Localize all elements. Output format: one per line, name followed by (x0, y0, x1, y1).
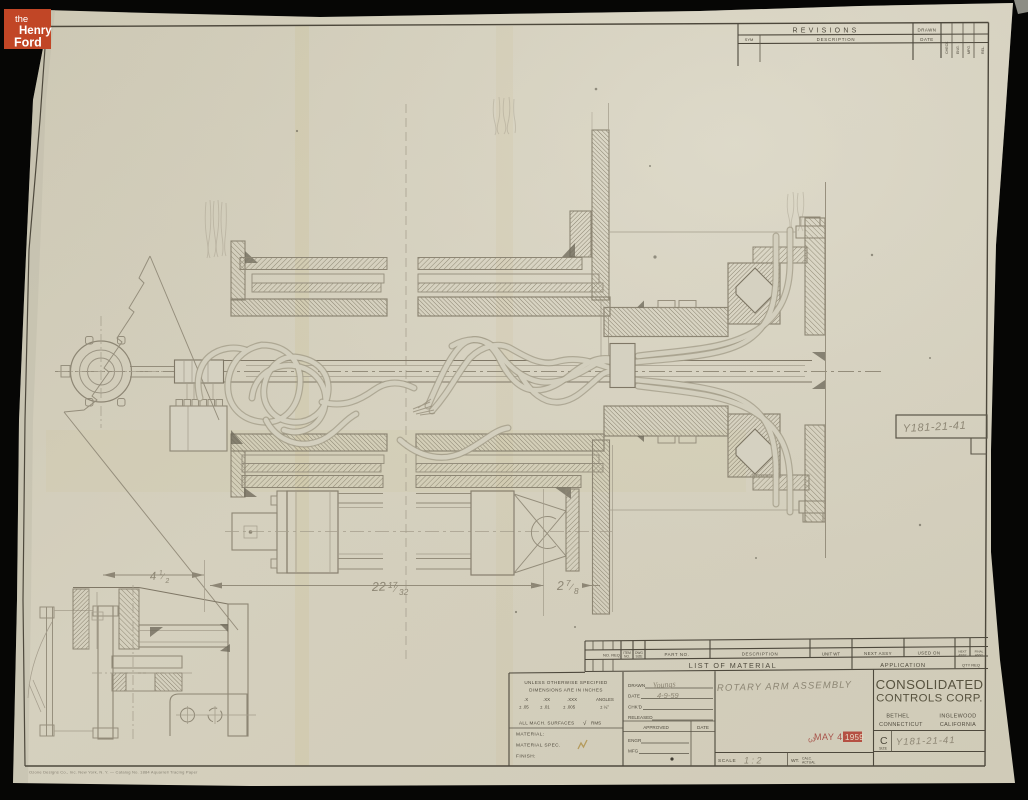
svg-text:DESCRIPTION: DESCRIPTION (742, 652, 779, 657)
svg-text:UNLESS OTHERWISE SPECIFIED: UNLESS OTHERWISE SPECIFIED (524, 680, 608, 685)
svg-text:BETHEL: BETHEL (886, 714, 909, 720)
svg-text:UNIT WT: UNIT WT (822, 651, 841, 656)
svg-text:± .01: ± .01 (540, 705, 550, 710)
svg-text:USED ON: USED ON (918, 651, 941, 656)
svg-text:NO.: NO. (624, 655, 630, 659)
svg-text:WT.: WT. (791, 758, 799, 764)
svg-text:SIZE: SIZE (879, 747, 888, 751)
svg-text:CALIFORNIA: CALIFORNIA (940, 722, 976, 728)
svg-text:CONNECTICUT: CONNECTICUT (879, 722, 923, 728)
svg-text:NO. REQ.: NO. REQ. (603, 653, 621, 658)
svg-text:ASSY: ASSY (975, 653, 983, 657)
svg-text:2: 2 (556, 579, 564, 593)
svg-text:SCALE: SCALE (718, 758, 736, 764)
svg-text:the: the (15, 14, 28, 25)
svg-text:REVISIONS: REVISIONS (793, 28, 860, 35)
svg-text:PART NO.: PART NO. (664, 652, 689, 657)
svg-text:1959: 1959 (845, 733, 864, 742)
svg-text:ASSY: ASSY (958, 653, 966, 657)
svg-text:INGLEWOOD: INGLEWOOD (939, 714, 976, 720)
svg-text:.XX: .XX (543, 697, 550, 702)
svg-text:MAY 4: MAY 4 (814, 732, 843, 742)
svg-text:DRAWN: DRAWN (628, 683, 645, 688)
svg-text:APPROVED: APPROVED (643, 725, 669, 730)
svg-text:CONSOLIDATED: CONSOLIDATED (876, 677, 984, 692)
svg-text:± .005: ± .005 (563, 705, 576, 710)
svg-text:SIZE: SIZE (635, 655, 642, 659)
svg-text:8: 8 (574, 586, 579, 596)
svg-text:REL.: REL. (981, 46, 985, 54)
svg-text:CONTROLS CORP.: CONTROLS CORP. (876, 693, 983, 705)
svg-text:Y181-21-41: Y181-21-41 (896, 735, 956, 748)
svg-text:ACTUAL: ACTUAL (802, 761, 815, 765)
svg-text:MATERIAL SPEC.: MATERIAL SPEC. (516, 743, 561, 749)
svg-text:RELEASED: RELEASED (628, 715, 653, 720)
svg-text:DRAWN: DRAWN (918, 28, 937, 33)
svg-text:DIMENSIONS ARE IN INCHES: DIMENSIONS ARE IN INCHES (529, 688, 603, 693)
svg-text:.XXX: .XXX (567, 697, 577, 702)
svg-text:2: 2 (164, 578, 169, 585)
svg-text:DATE: DATE (628, 694, 640, 699)
svg-text:NEXT ASSY: NEXT ASSY (864, 651, 892, 656)
svg-text:MFG: MFG (628, 749, 639, 754)
svg-text:RMS: RMS (591, 721, 601, 726)
svg-text:ENGR: ENGR (628, 738, 642, 743)
svg-text:4: 4 (150, 571, 157, 583)
svg-text:± ¼°: ± ¼° (600, 705, 609, 710)
svg-text:C: C (880, 735, 888, 747)
svg-text:.X: .X (524, 697, 528, 702)
svg-text:DESCRIPTION: DESCRIPTION (817, 37, 856, 42)
svg-text:DATE: DATE (697, 725, 709, 730)
svg-text:ANGLES: ANGLES (596, 697, 614, 702)
svg-text:LIST OF MATERIAL: LIST OF MATERIAL (689, 661, 777, 670)
svg-text:SYM: SYM (745, 37, 754, 42)
svg-text:MFG.: MFG. (967, 45, 971, 54)
svg-text:MATERIAL:: MATERIAL: (516, 732, 545, 738)
svg-text:1 : 2: 1 : 2 (744, 756, 762, 766)
svg-text:APPLICATION: APPLICATION (880, 663, 926, 669)
svg-text:CHECK: CHECK (945, 41, 949, 54)
svg-text:Youngs: Youngs (653, 679, 676, 690)
svg-text:FINISH:: FINISH: (516, 754, 536, 760)
svg-text:32: 32 (399, 587, 409, 597)
svg-text:ALL MACH. SURFACES: ALL MACH. SURFACES (519, 721, 575, 726)
svg-text:Ozone Designs Co., Inc. N: Ozone Designs Co., Inc. New York, N. Y. … (29, 770, 198, 775)
svg-text:ENG.: ENG. (956, 45, 960, 54)
svg-text:Ford: Ford (14, 36, 42, 50)
svg-text:4-9-59: 4-9-59 (657, 691, 680, 700)
svg-text:± .05: ± .05 (519, 705, 529, 710)
svg-text:DATE: DATE (920, 37, 933, 42)
svg-text:22: 22 (371, 580, 386, 595)
svg-text:CHK'D: CHK'D (628, 705, 643, 710)
svg-text:QTY REQ: QTY REQ (962, 662, 980, 667)
